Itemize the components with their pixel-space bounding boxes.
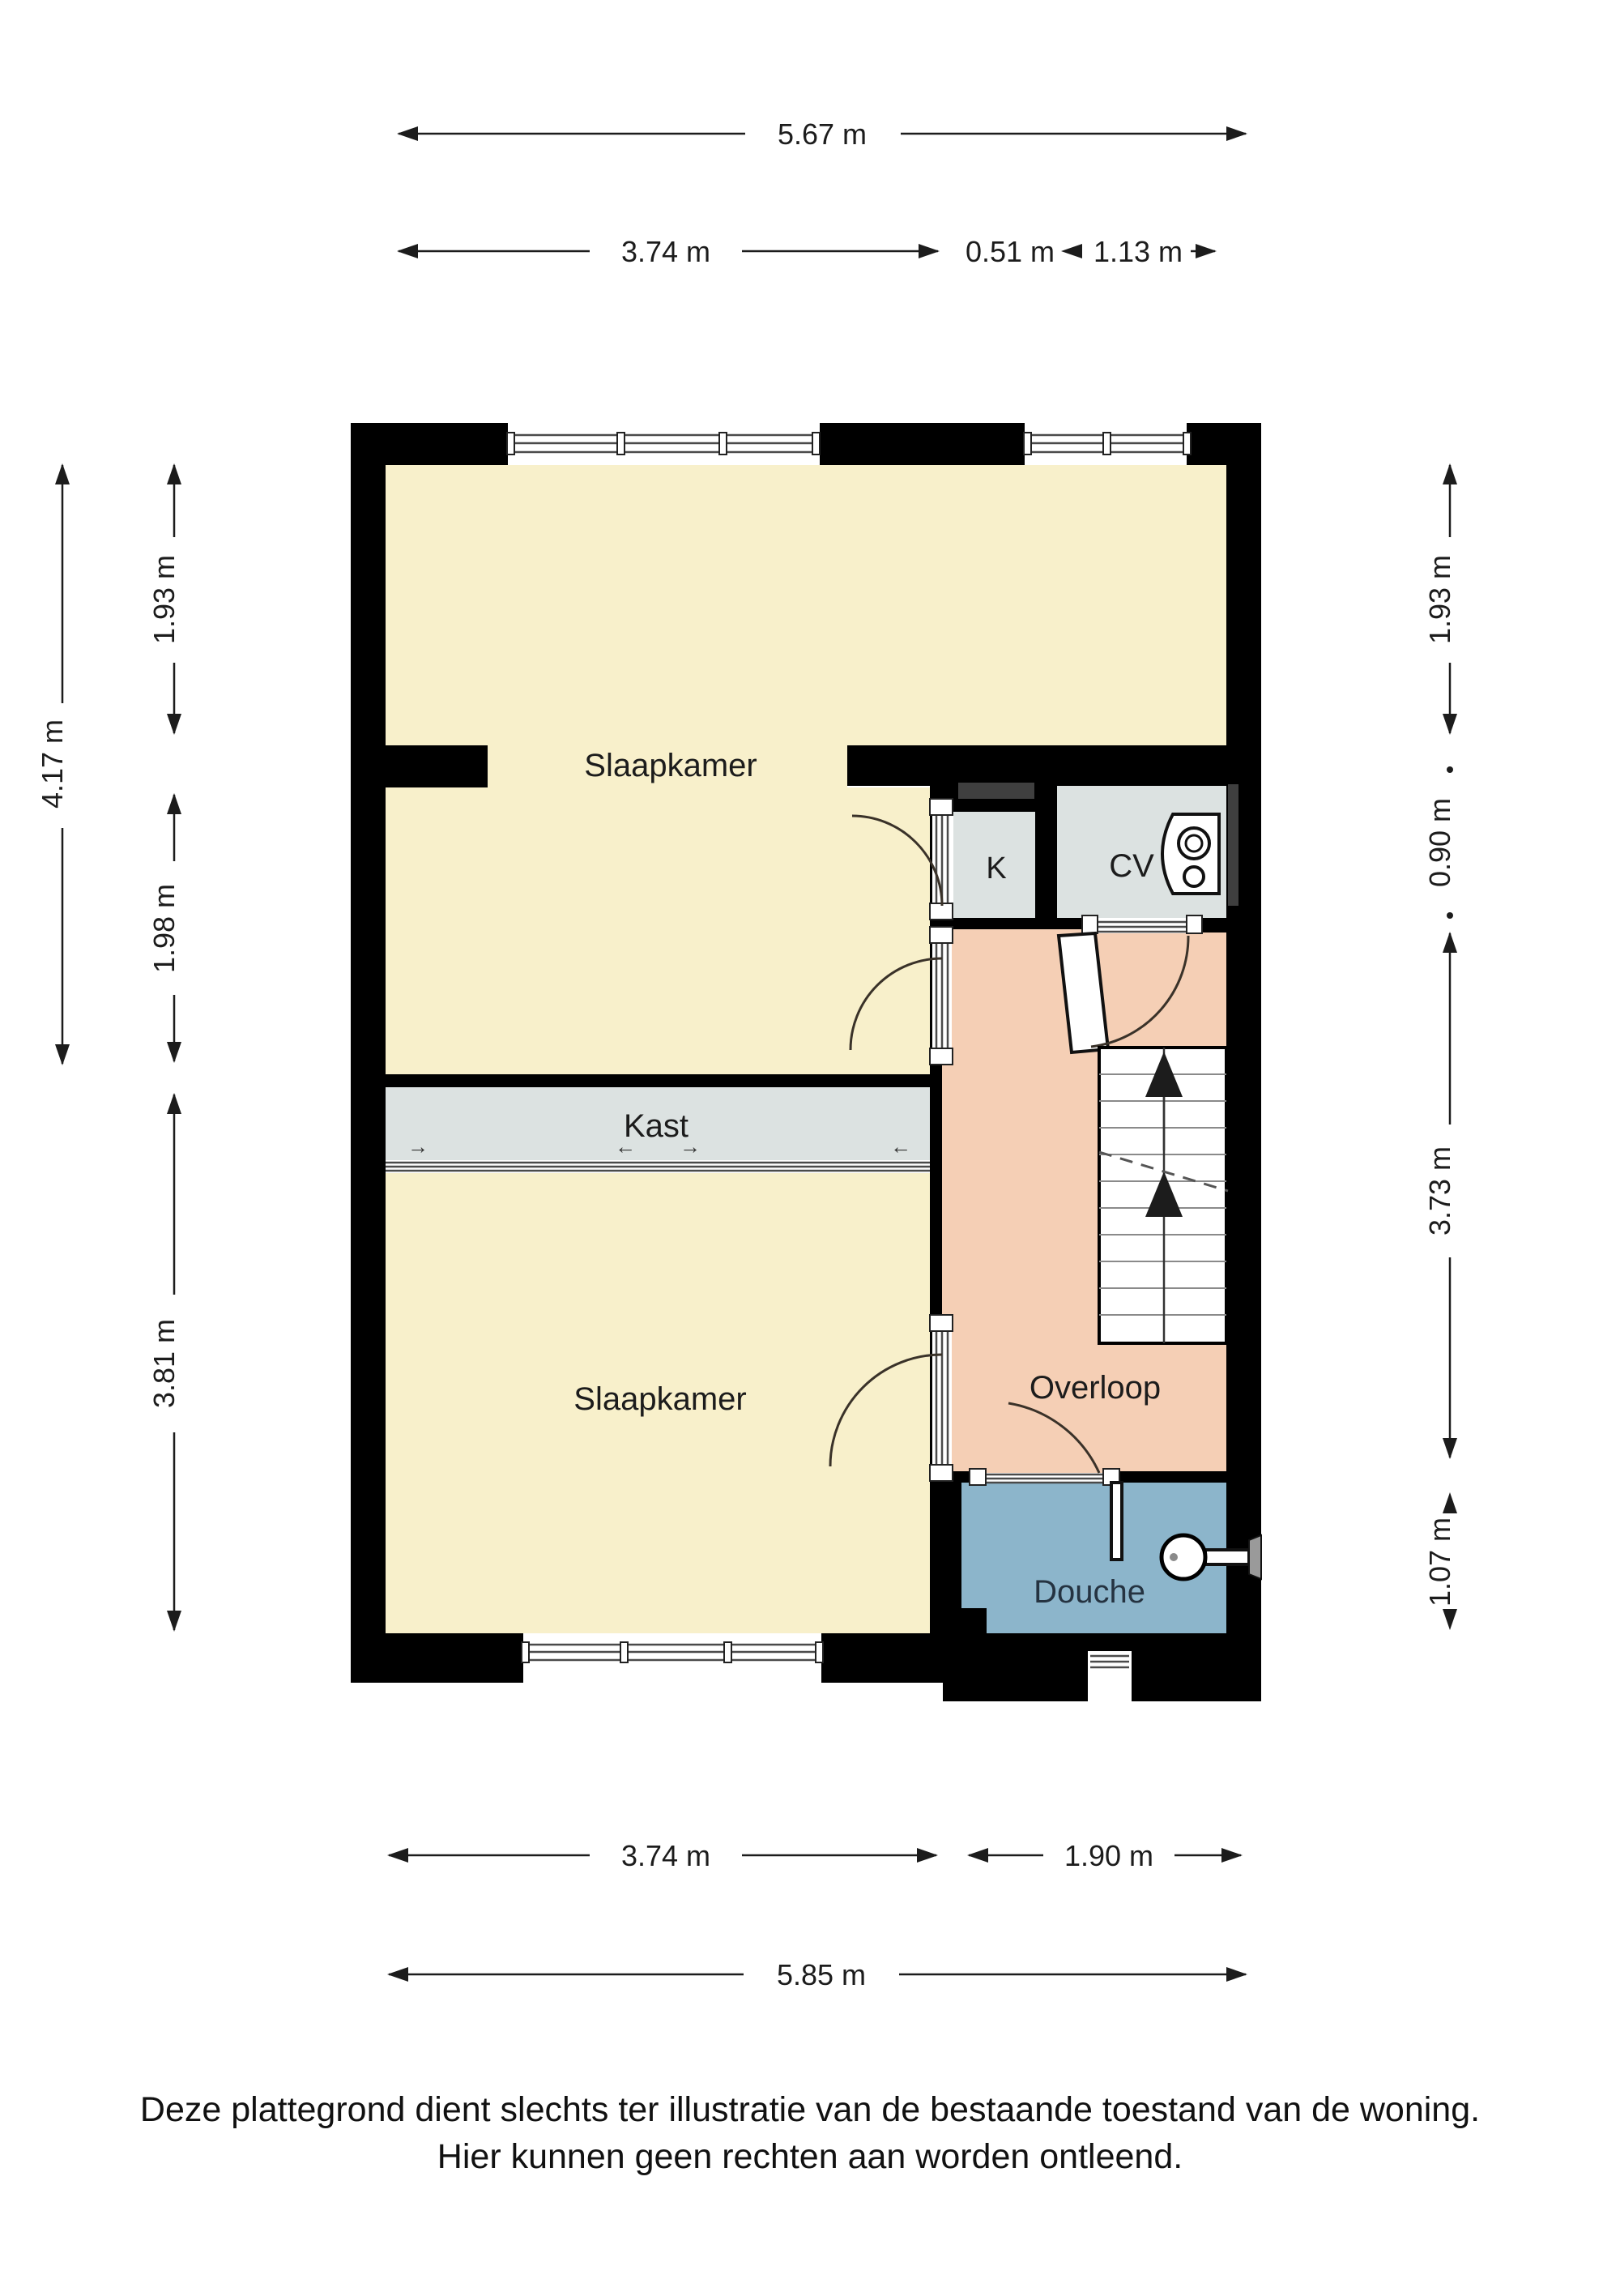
dim-top-mid: 0.51 m xyxy=(966,235,1055,268)
label-landing: Overloop xyxy=(1030,1370,1161,1406)
label-boiler-room: CV xyxy=(1109,848,1154,884)
dim-top-left: 3.74 m xyxy=(621,235,710,268)
floorplan-drawing: Slaapkamer Slaapkamer Kast K CV Overloop… xyxy=(0,0,1620,2292)
closet-arrow-1: → xyxy=(407,1134,428,1159)
dim-left-total: 4.17 m xyxy=(36,719,69,809)
dim-bottom-right: 1.90 m xyxy=(1064,1839,1153,1872)
closet-arrow-4: ← xyxy=(890,1134,911,1159)
boiler-icon xyxy=(1162,814,1219,894)
dim-left-upper: 1.93 m xyxy=(147,555,181,644)
dim-right-lower: 1.07 m xyxy=(1423,1517,1456,1607)
dim-bottom-left: 3.74 m xyxy=(621,1839,710,1872)
duct-right-wall xyxy=(1228,784,1238,906)
shower-partition xyxy=(1111,1483,1122,1560)
window-bottom xyxy=(522,1642,823,1662)
shower-arm xyxy=(1205,1550,1249,1564)
disclaimer-line-1: Deze plattegrond dient slechts ter illus… xyxy=(0,2086,1620,2133)
dim-left-middle: 1.98 m xyxy=(147,884,181,973)
room-bedroom-top-lower xyxy=(386,787,930,1074)
closet-sliding-doors xyxy=(386,1160,930,1173)
disclaimer-line-2: Hier kunnen geen rechten aan worden ontl… xyxy=(0,2133,1620,2180)
label-bedroom-top: Slaapkamer xyxy=(584,748,757,783)
shower-wall-mount xyxy=(1249,1535,1261,1579)
vent-window-bottom xyxy=(1088,1651,1132,1701)
shower-head-icon xyxy=(1162,1535,1205,1579)
room-bedroom-top xyxy=(386,465,1226,745)
duct-recess xyxy=(958,783,1034,799)
dim-right-upper: 1.93 m xyxy=(1423,555,1456,644)
dim-top-total: 5.67 m xyxy=(778,117,867,151)
dim-right-cv: 0.90 m xyxy=(1423,798,1456,887)
label-bedroom-bottom: Slaapkamer xyxy=(573,1381,746,1417)
label-shower: Douche xyxy=(1034,1574,1145,1610)
stairs xyxy=(1099,1048,1228,1343)
closet-arrow-3: → xyxy=(680,1134,701,1159)
dim-right-middle: 3.73 m xyxy=(1423,1146,1456,1235)
window-top-right xyxy=(1024,433,1191,455)
floorplan-page: Slaapkamer Slaapkamer Kast K CV Overloop… xyxy=(0,0,1620,2292)
disclaimer: Deze plattegrond dient slechts ter illus… xyxy=(0,2086,1620,2180)
closet-arrow-2: ← xyxy=(615,1134,636,1159)
dim-left-lower: 3.81 m xyxy=(147,1319,181,1408)
label-closet-small: K xyxy=(986,851,1006,886)
dim-bottom-total: 5.85 m xyxy=(777,1958,866,1991)
dim-top-right: 1.13 m xyxy=(1093,235,1183,268)
window-top-left xyxy=(507,433,820,455)
